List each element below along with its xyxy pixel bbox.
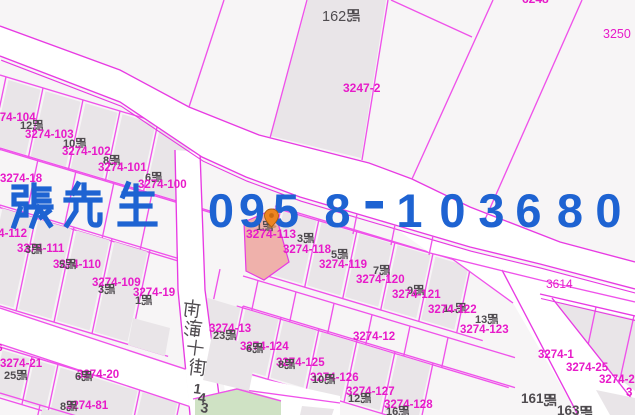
svg-text:25: 25 (4, 370, 16, 382)
svg-text:3274-100: 3274-100 (138, 179, 187, 191)
svg-text:3274-21: 3274-21 (0, 358, 43, 370)
svg-text:0: 0 (595, 184, 621, 237)
svg-text:3274-120: 3274-120 (356, 274, 405, 286)
svg-text:6: 6 (246, 343, 252, 355)
svg-text:12: 12 (348, 393, 360, 405)
svg-text:3614: 3614 (546, 277, 573, 291)
svg-text:3274-1: 3274-1 (538, 349, 574, 361)
svg-text:5: 5 (273, 184, 299, 237)
svg-text:8: 8 (278, 359, 284, 371)
svg-text:1: 1 (396, 184, 422, 237)
svg-text:3: 3 (478, 184, 504, 237)
svg-text:0: 0 (208, 184, 234, 237)
svg-text:3274-12: 3274-12 (353, 331, 395, 343)
svg-text:10: 10 (312, 374, 324, 386)
svg-text:8: 8 (557, 184, 583, 237)
svg-text:8: 8 (324, 184, 350, 237)
svg-text:3250: 3250 (603, 27, 631, 41)
svg-text:5: 5 (59, 259, 65, 271)
svg-text:6: 6 (0, 343, 3, 354)
svg-text:3274-119: 3274-119 (319, 259, 367, 271)
svg-text:23: 23 (213, 330, 225, 342)
svg-text:3274-123: 3274-123 (460, 324, 509, 336)
svg-text:3: 3 (25, 244, 31, 256)
svg-text:162: 162 (322, 9, 346, 25)
svg-text:1: 1 (135, 295, 141, 307)
svg-text:3274-101: 3274-101 (98, 162, 147, 174)
svg-text:9: 9 (239, 184, 265, 237)
svg-text:3274-25: 3274-25 (566, 362, 609, 374)
svg-text:3247-2: 3247-2 (343, 81, 381, 95)
svg-text:3274-26: 3274-26 (599, 374, 635, 386)
svg-text:16: 16 (386, 406, 398, 415)
svg-text:163: 163 (557, 403, 580, 415)
svg-text:3274-121: 3274-121 (392, 289, 441, 301)
svg-text:3274-112: 3274-112 (0, 228, 27, 240)
svg-text:6248: 6248 (522, 0, 549, 6)
svg-text:6: 6 (75, 371, 81, 383)
svg-text:3274-118: 3274-118 (283, 244, 332, 256)
svg-text:8: 8 (60, 401, 66, 413)
svg-text:3274-122: 3274-122 (428, 304, 477, 316)
svg-text:161: 161 (521, 391, 544, 406)
svg-text:6: 6 (515, 184, 541, 237)
svg-text:3: 3 (626, 387, 632, 399)
svg-text:0: 0 (439, 184, 465, 237)
svg-text:3: 3 (98, 284, 104, 296)
